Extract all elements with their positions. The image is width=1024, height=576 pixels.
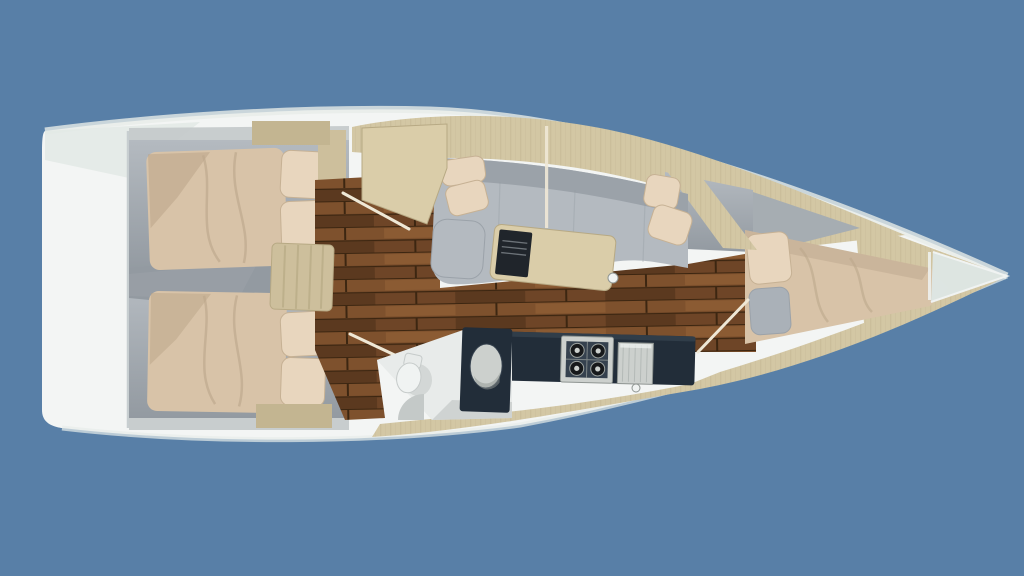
pillow-starboard-2 [280,357,326,407]
pillow-vberth-1 [746,231,793,285]
stove [560,336,613,383]
galley-faucet-base [632,384,640,392]
floorplan-canvas [0,0,1024,576]
pillow-vberth-gray [748,287,791,336]
double-bed-starboard [147,291,287,413]
boat-floorplan-render [0,0,1024,576]
vanity [460,327,513,413]
mast-post [545,126,548,228]
cockpit-locker-bottom [256,404,332,428]
nav-seat [430,218,486,279]
sink-highlight [620,344,651,349]
cockpit-locker-top [252,121,330,145]
stair-body [270,243,334,311]
table-pedestal-cap [608,273,618,283]
galley [506,332,695,386]
companionway-stairs [270,243,334,311]
bow-bulkhead [928,252,931,300]
galley-sink [617,342,653,384]
double-bed-port [146,148,288,271]
